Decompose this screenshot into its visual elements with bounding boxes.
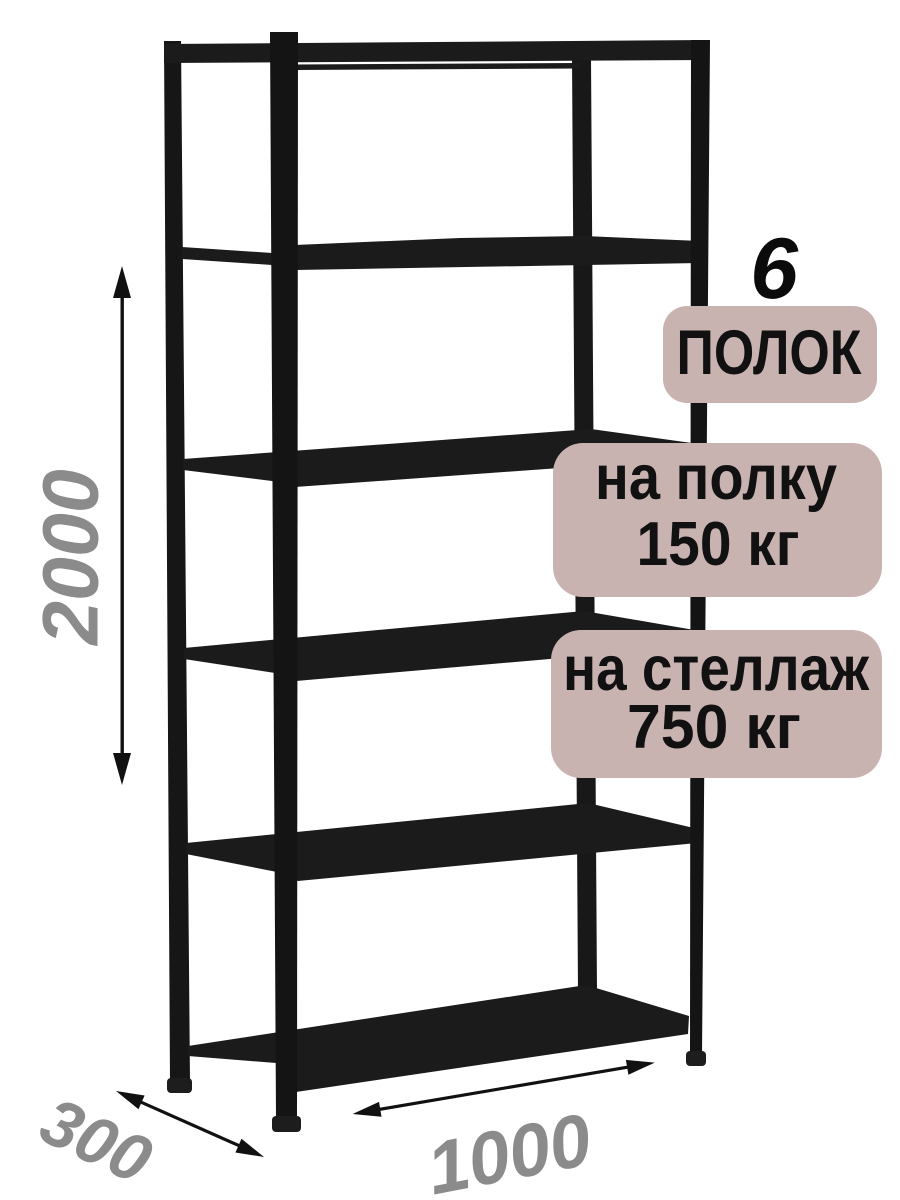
- svg-text:ПОЛОК: ПОЛОК: [677, 318, 862, 388]
- svg-text:150 кг: 150 кг: [637, 510, 800, 579]
- svg-text:750 кг: 750 кг: [627, 693, 801, 762]
- svg-text:на полку: на полку: [595, 443, 837, 513]
- svg-text:2000: 2000: [26, 469, 115, 647]
- svg-text:6: 6: [750, 221, 799, 317]
